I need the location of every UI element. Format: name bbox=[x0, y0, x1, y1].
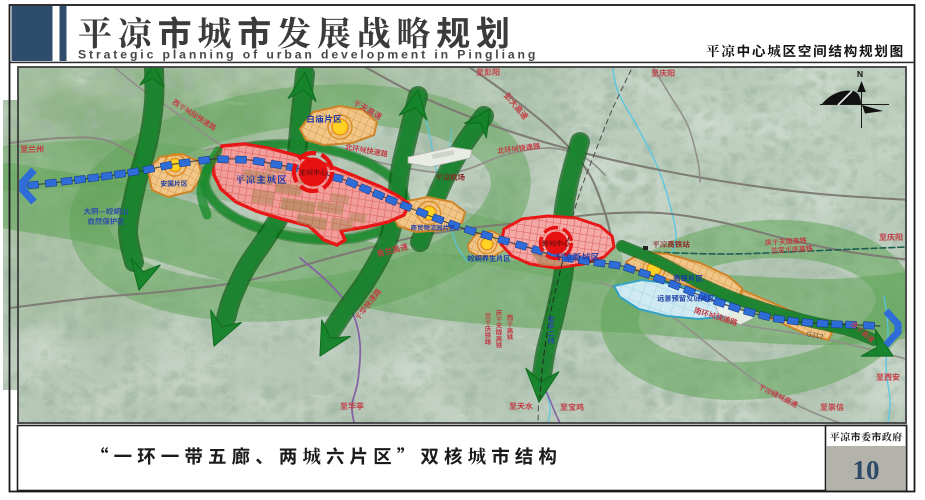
svg-text:N: N bbox=[857, 69, 863, 79]
svg-text:Strategic planning of urban de: Strategic planning of urban development … bbox=[78, 48, 538, 62]
svg-text:10: 10 bbox=[853, 455, 880, 485]
